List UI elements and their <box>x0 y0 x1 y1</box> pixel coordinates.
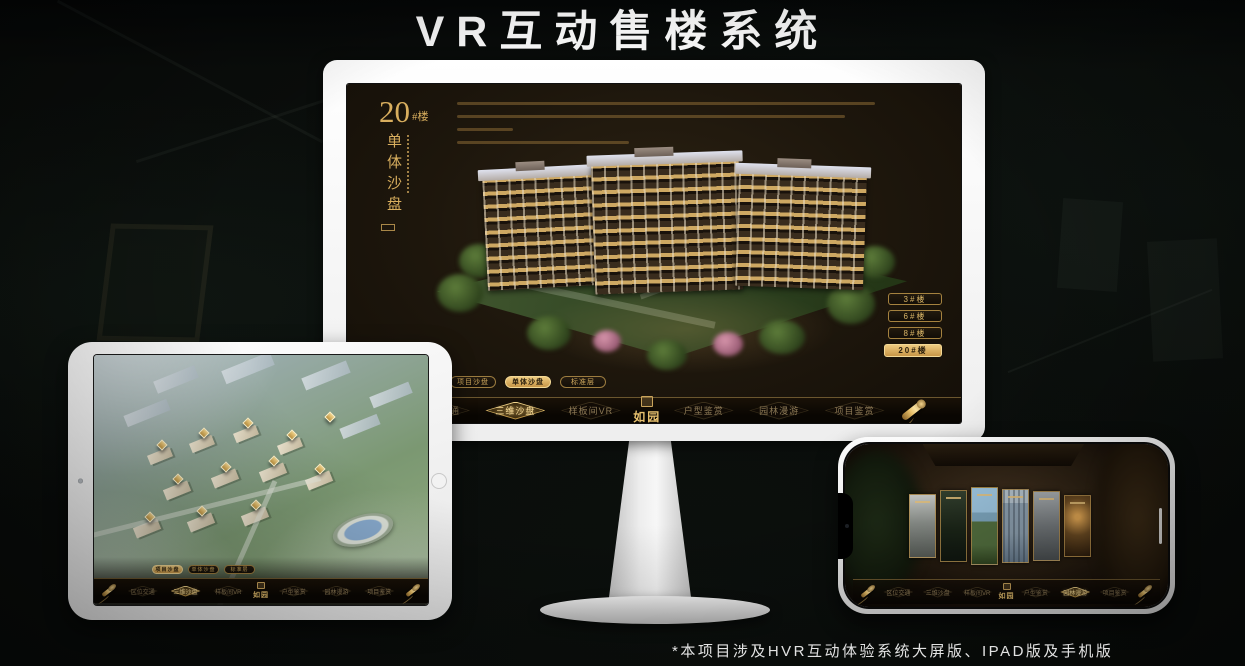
sandbox-subtabs: 项目沙盘 单体沙盘 标准层 <box>152 565 255 574</box>
nav-item-label: 样板间VR <box>215 587 241 596</box>
building-subtitle: 单体沙盘 <box>383 133 404 217</box>
floor-button-3[interactable]: 3#楼 <box>888 293 942 305</box>
poster-footnote: *本项目涉及HVR互动体验系统大屏版、IPAD版及手机版 <box>672 640 1113 661</box>
phone-app-screen: 区位交通 三维沙盘 样板间VR 如园 户型鉴赏 园林漫游 项目鉴赏 <box>845 444 1168 607</box>
brand-logo-text: 如园 <box>253 590 269 600</box>
nav-item-project-gallery[interactable]: 项目鉴赏 <box>1097 586 1133 599</box>
floor-button-label: 8#楼 <box>904 328 927 339</box>
road <box>94 476 321 539</box>
poster-title: VR互动售楼系统 <box>0 0 1245 56</box>
nav-item-unit-plans[interactable]: 户型鉴赏 <box>671 401 737 421</box>
nav-item-showroom-vr[interactable]: 样板间VR <box>558 401 624 421</box>
floor-button-label: 6#楼 <box>904 311 927 322</box>
floor-button-stack: 3#楼 6#楼 8#楼 20#楼 <box>882 293 942 357</box>
monitor-stand-neck <box>585 440 715 602</box>
tree <box>759 320 805 354</box>
sandbox-3d-viewport[interactable] <box>407 134 927 396</box>
nav-item-location-traffic[interactable]: 区位交通 <box>125 585 161 598</box>
nav-item-label: 样板间VR <box>964 588 990 597</box>
gallery-panel[interactable] <box>1064 495 1091 557</box>
subtab-label: 标准层 <box>230 566 248 573</box>
stadium <box>329 507 397 553</box>
nav-item-label: 区位交通 <box>886 588 910 597</box>
floor-button-label: 20#楼 <box>898 345 927 356</box>
nav-item-3d-sandbox[interactable]: 三维沙盘 <box>168 585 204 598</box>
nav-item-label: 样板间VR <box>569 404 614 417</box>
scroll-menu-icon[interactable] <box>859 585 877 599</box>
ipad-device: 项目沙盘 单体沙盘 标准层 区位交通 三维沙盘 样板间VR 如园 户型鉴赏 园林… <box>68 342 452 620</box>
phone-notch <box>838 493 853 559</box>
home-indicator[interactable] <box>1159 508 1162 544</box>
subtab-label: 标准层 <box>571 377 595 387</box>
nav-item-garden-roam[interactable]: 园林漫游 <box>319 585 355 598</box>
scroll-menu-icon[interactable] <box>897 400 931 422</box>
brand-logo: 如园 <box>999 583 1015 601</box>
nav-item-label: 园林漫游 <box>1063 588 1087 597</box>
subtab-label: 项目沙盘 <box>457 377 489 387</box>
gallery-panel[interactable] <box>1002 489 1029 563</box>
ipad-app-screen: 项目沙盘 单体沙盘 标准层 区位交通 三维沙盘 样板间VR 如园 户型鉴赏 园林… <box>94 355 428 605</box>
background-building <box>339 414 380 439</box>
brand-logo: 如园 <box>253 582 269 600</box>
nav-item-label: 户型鉴赏 <box>684 404 724 417</box>
nav-item-label: 项目鉴赏 <box>1103 588 1127 597</box>
bg-sign-board <box>97 224 214 343</box>
scroll-menu-icon[interactable] <box>1136 585 1154 599</box>
subtab-project-sandbox[interactable]: 项目沙盘 <box>450 376 496 388</box>
nav-item-showroom-vr[interactable]: 样板间VR <box>959 586 995 599</box>
nav-item-label: 项目鉴赏 <box>367 587 391 596</box>
nav-item-garden-roam[interactable]: 园林漫游 <box>1057 586 1093 599</box>
nav-item-unit-plans[interactable]: 户型鉴赏 <box>1018 586 1054 599</box>
bg-building-silhouette <box>1147 238 1223 361</box>
tree <box>527 316 571 350</box>
flower-tree <box>593 330 621 352</box>
gallery-panel[interactable] <box>1033 491 1060 561</box>
nav-item-unit-plans[interactable]: 户型鉴赏 <box>276 585 312 598</box>
subtab-single-sandbox[interactable]: 单体沙盘 <box>188 565 219 574</box>
brand-logo-text: 如园 <box>633 408 661 423</box>
bg-building-silhouette <box>1057 198 1123 292</box>
floor-button-6[interactable]: 6#楼 <box>888 310 942 322</box>
scroll-menu-icon[interactable] <box>404 584 422 598</box>
poster: VR互动售楼系统 20 #楼 单体沙盘 <box>0 0 1245 666</box>
nav-item-label: 户型鉴赏 <box>282 587 306 596</box>
gallery-panel[interactable] <box>971 487 998 565</box>
sandbox-subtabs: 项目沙盘 单体沙盘 标准层 <box>450 376 606 388</box>
gold-scroll-icon <box>860 586 874 598</box>
floor-button-8[interactable]: 8#楼 <box>888 327 942 339</box>
background-building <box>369 382 412 409</box>
nav-item-label: 三维沙盘 <box>495 404 535 417</box>
nav-item-label: 区位交通 <box>131 587 155 596</box>
subtab-project-sandbox[interactable]: 项目沙盘 <box>152 565 183 574</box>
nav-item-label: 三维沙盘 <box>926 588 950 597</box>
background-building <box>153 365 199 394</box>
main-nav-bar: 区位交通 三维沙盘 样板间VR 如园 户型鉴赏 园林漫游 项目鉴赏 <box>94 578 428 603</box>
brand-seal-icon <box>257 582 265 589</box>
building-number-unit: #楼 <box>412 108 429 127</box>
nav-item-label: 项目鉴赏 <box>835 404 875 417</box>
ipad-home-button[interactable] <box>431 473 447 489</box>
main-nav-bar: 区位交通 三维沙盘 样板间VR 如园 户型鉴赏 园林漫游 项目鉴赏 <box>853 579 1160 604</box>
monitor-stand-base <box>540 596 770 624</box>
building-model-wing <box>482 173 600 291</box>
tree <box>437 274 483 312</box>
subtab-single-sandbox[interactable]: 单体沙盘 <box>505 376 551 388</box>
gold-scroll-icon <box>405 585 419 597</box>
brand-seal-icon <box>641 396 653 407</box>
flower-tree <box>713 332 743 356</box>
nav-item-garden-roam[interactable]: 园林漫游 <box>746 401 812 421</box>
building-number: 20 <box>379 96 410 127</box>
brand-logo-text: 如园 <box>999 591 1015 601</box>
subtab-label: 单体沙盘 <box>191 566 215 573</box>
building-model-wing <box>735 172 867 290</box>
background-building <box>301 360 350 390</box>
title-ornament <box>381 224 395 231</box>
scroll-menu-icon[interactable] <box>100 584 118 598</box>
tree <box>827 284 875 324</box>
brand-seal-icon <box>1003 583 1011 590</box>
tree <box>647 340 687 370</box>
gold-scroll-icon <box>1137 586 1151 598</box>
subtab-standard-floor[interactable]: 标准层 <box>560 376 606 388</box>
nav-item-3d-sandbox[interactable]: 三维沙盘 <box>482 401 548 421</box>
nav-item-label: 户型鉴赏 <box>1024 588 1048 597</box>
ceiling-beam <box>923 444 1085 466</box>
panorama-gallery <box>909 486 1103 566</box>
nav-item-showroom-vr[interactable]: 样板间VR <box>210 585 246 598</box>
nav-item-label: 园林漫游 <box>759 404 799 417</box>
nav-item-location-traffic[interactable]: 区位交通 <box>880 586 916 599</box>
nav-item-3d-sandbox[interactable]: 三维沙盘 <box>920 586 956 599</box>
subtab-standard-floor[interactable]: 标准层 <box>224 565 255 574</box>
nav-item-label: 园林漫游 <box>324 587 348 596</box>
floor-button-20[interactable]: 20#楼 <box>884 344 942 357</box>
description-line <box>457 128 513 131</box>
gold-scroll-icon <box>901 399 926 421</box>
phone-device: 区位交通 三维沙盘 样板间VR 如园 户型鉴赏 园林漫游 项目鉴赏 <box>838 437 1175 614</box>
nav-item-project-gallery[interactable]: 项目鉴赏 <box>822 401 888 421</box>
ipad-camera-icon <box>78 479 83 484</box>
gallery-panel[interactable] <box>940 490 967 562</box>
background-building <box>221 355 274 384</box>
nav-item-project-gallery[interactable]: 项目鉴赏 <box>361 585 397 598</box>
nav-item-label: 三维沙盘 <box>173 587 197 596</box>
description-line <box>457 115 845 118</box>
brand-logo: 如园 <box>633 396 661 423</box>
floor-button-label: 3#楼 <box>904 294 927 305</box>
building-marker[interactable] <box>324 411 335 422</box>
gallery-panel[interactable] <box>909 494 936 558</box>
subtab-label: 单体沙盘 <box>512 377 544 387</box>
background-building <box>123 399 170 427</box>
interior-wall <box>1096 444 1168 598</box>
gold-scroll-icon <box>101 585 115 597</box>
subtab-label: 项目沙盘 <box>155 566 179 573</box>
description-line <box>457 102 875 105</box>
building-model-center <box>591 159 743 294</box>
